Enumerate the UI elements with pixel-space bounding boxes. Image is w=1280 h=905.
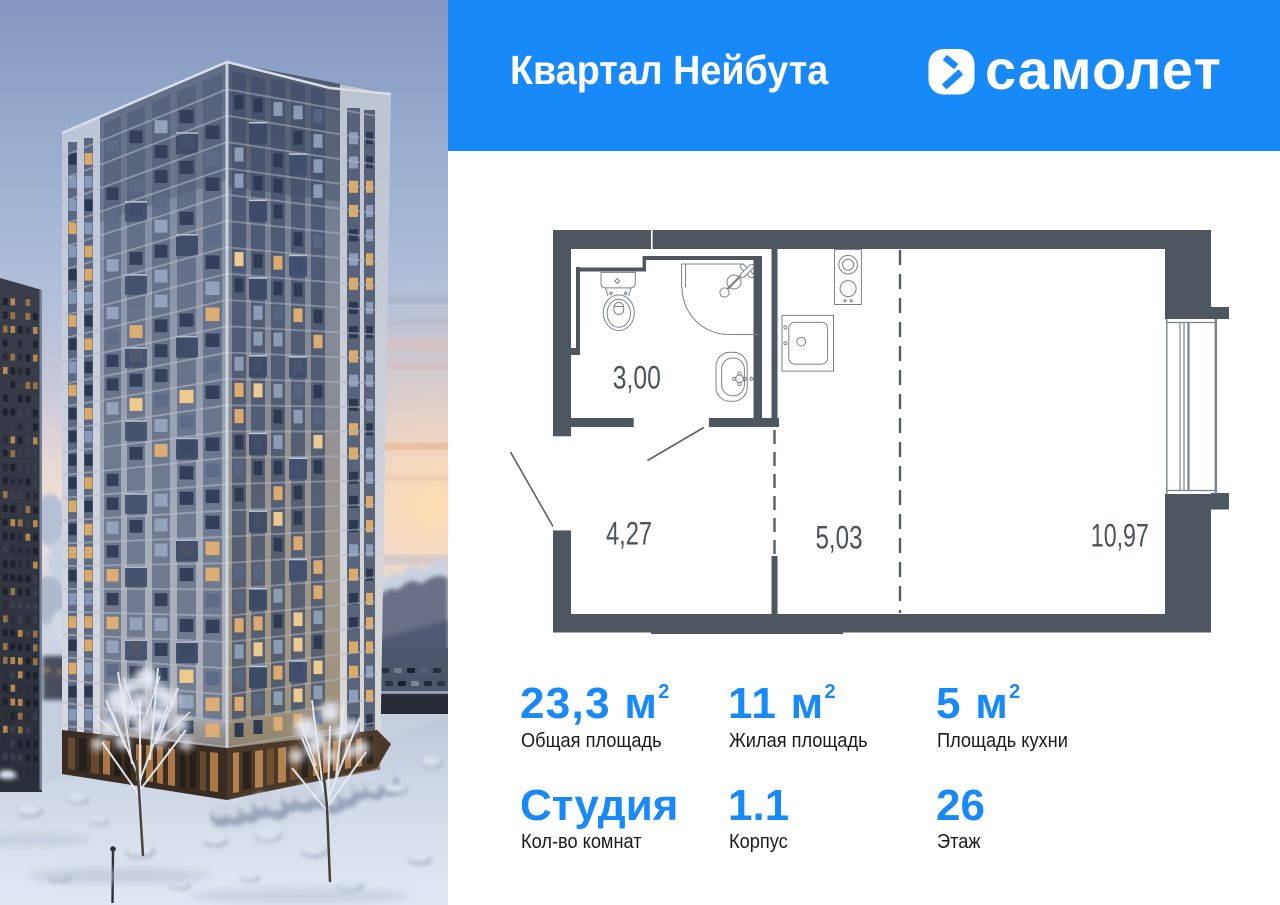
svg-text:5,03: 5,03 — [816, 520, 863, 556]
svg-text:4,27: 4,27 — [606, 516, 652, 552]
svg-text:3,00: 3,00 — [613, 360, 661, 396]
svg-text:10,97: 10,97 — [1091, 518, 1149, 554]
